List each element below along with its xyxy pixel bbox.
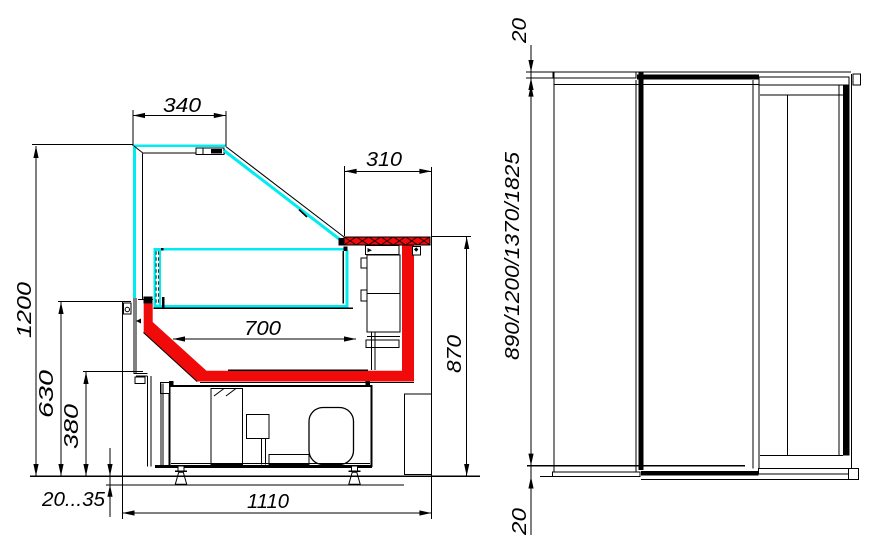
svg-text:1200: 1200 [14, 282, 36, 338]
svg-text:20: 20 [509, 18, 531, 44]
svg-text:340: 340 [163, 95, 201, 117]
svg-text:630: 630 [36, 370, 58, 418]
svg-text:890/1200/1370/1825: 890/1200/1370/1825 [502, 151, 524, 360]
svg-text:700: 700 [244, 318, 281, 340]
svg-text:20: 20 [509, 508, 531, 536]
svg-text:380: 380 [61, 404, 83, 449]
svg-text:1110: 1110 [247, 491, 289, 513]
svg-text:310: 310 [366, 149, 402, 171]
svg-text:870: 870 [444, 335, 466, 373]
svg-text:20...35: 20...35 [41, 489, 106, 511]
